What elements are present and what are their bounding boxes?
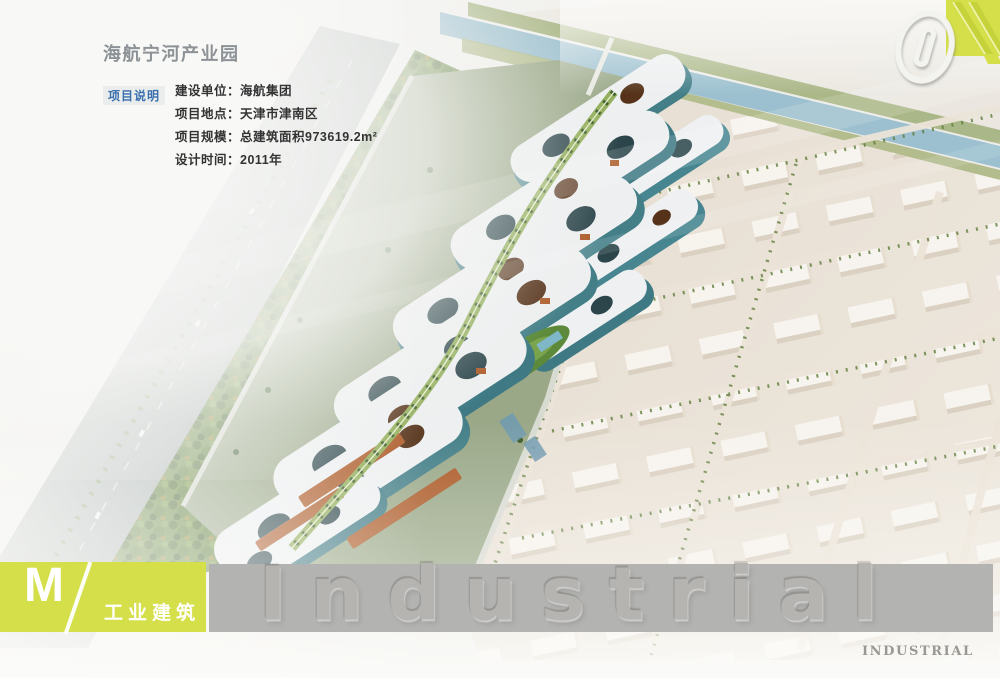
section-label: 项目说明 bbox=[103, 86, 165, 105]
project-info: 项目说明 建设单位：海航集团 项目地点：天津市津南区 项目规模：总建筑面积973… bbox=[103, 85, 377, 177]
presentation-page: 海航宁河产业园 项目说明 建设单位：海航集团 项目地点：天津市津南区 项目规模：… bbox=[0, 0, 1000, 678]
info-row-owner: 建设单位：海航集团 bbox=[175, 85, 377, 98]
category-block: M 工业建筑 bbox=[0, 562, 206, 632]
watermark-text: Industrial bbox=[259, 552, 901, 638]
page-number: 01 bbox=[840, 0, 1000, 110]
watermark-band: Industrial bbox=[209, 564, 993, 632]
section-letter: M bbox=[24, 562, 64, 610]
page-number-graphic bbox=[840, 0, 1000, 110]
info-row-year: 设计时间：2011年 bbox=[175, 154, 377, 167]
info-row-scale: 项目规模：总建筑面积973619.2m² bbox=[175, 131, 377, 144]
page-title: 海航宁河产业园 bbox=[103, 40, 377, 66]
footer-caption: INDUSTRIAL bbox=[862, 644, 974, 659]
info-row-location: 项目地点：天津市津南区 bbox=[175, 108, 377, 121]
project-info-list: 建设单位：海航集团 项目地点：天津市津南区 项目规模：总建筑面积973619.2… bbox=[175, 85, 377, 177]
header: 海航宁河产业园 项目说明 建设单位：海航集团 项目地点：天津市津南区 项目规模：… bbox=[103, 40, 377, 177]
slash-divider bbox=[64, 561, 93, 634]
category-label: 工业建筑 bbox=[104, 598, 200, 625]
